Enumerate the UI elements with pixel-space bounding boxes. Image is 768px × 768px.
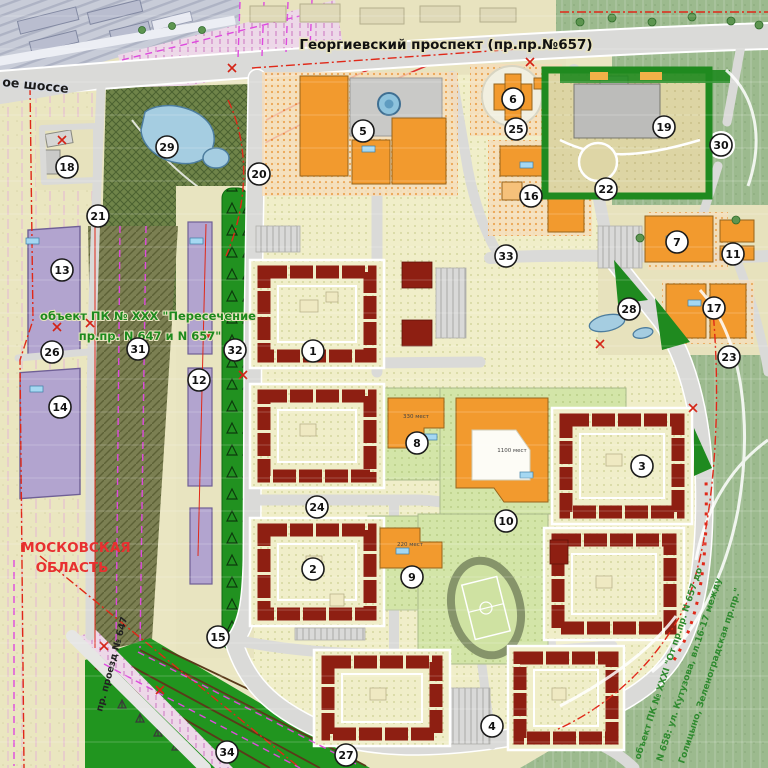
marker-number: 7 (673, 236, 681, 249)
marker-number: 2 (309, 563, 317, 576)
marker-2[interactable]: 2 (302, 558, 324, 580)
marker-number: 25 (508, 123, 523, 136)
marker-number: 30 (713, 139, 729, 152)
marker-number: 18 (59, 161, 74, 174)
marker-9[interactable]: 9 (401, 566, 423, 588)
marker-number: 19 (656, 121, 671, 134)
marker-25[interactable]: 25 (505, 118, 527, 140)
marker-number: 32 (227, 344, 242, 357)
marker-12[interactable]: 12 (188, 369, 210, 391)
marker-6[interactable]: 6 (502, 88, 524, 110)
marker-number: 29 (159, 141, 174, 154)
label-prospekt: Георгиевский проспект (пр.пр.№657) (299, 37, 592, 53)
marker-number: 1 (309, 345, 317, 358)
marker-11[interactable]: 11 (722, 243, 744, 265)
marker-number: 13 (54, 264, 69, 277)
label-capacity-kg9: 220 мест (397, 542, 424, 548)
marker-number: 15 (210, 631, 225, 644)
marker-24[interactable]: 24 (306, 496, 328, 518)
marker-30[interactable]: 30 (710, 134, 732, 156)
marker-number: 3 (638, 460, 646, 473)
label-capacity-school10: 1100 мест (497, 448, 527, 454)
label-pk30-line2: пр.пр. N 647 и N 657" (79, 329, 221, 343)
marker-15[interactable]: 15 (207, 626, 229, 648)
marker-number: 26 (44, 346, 60, 359)
marker-number: 4 (488, 720, 496, 733)
marker-number: 9 (408, 571, 416, 584)
marker-number: 21 (90, 210, 105, 223)
marker-23[interactable]: 23 (718, 346, 740, 368)
marker-5[interactable]: 5 (352, 120, 374, 142)
marker-32[interactable]: 32 (224, 339, 246, 361)
marker-29[interactable]: 29 (156, 136, 178, 158)
marker-7[interactable]: 7 (666, 231, 688, 253)
label-oblast-line1: МОСКОВСКАЯ (21, 540, 130, 556)
marker-19[interactable]: 19 (653, 116, 675, 138)
marker-31[interactable]: 31 (127, 338, 149, 360)
marker-number: 33 (498, 250, 513, 263)
marker-33[interactable]: 33 (495, 245, 517, 267)
marker-26[interactable]: 26 (41, 341, 63, 363)
marker-number: 22 (598, 183, 613, 196)
marker-3[interactable]: 3 (631, 455, 653, 477)
marker-13[interactable]: 13 (51, 259, 73, 281)
marker-number: 11 (725, 248, 740, 261)
marker-27[interactable]: 27 (335, 744, 357, 766)
marker-number: 16 (523, 190, 539, 203)
marker-1[interactable]: 1 (302, 340, 324, 362)
marker-number: 31 (130, 343, 145, 356)
marker-17[interactable]: 17 (703, 297, 725, 319)
marker-4[interactable]: 4 (481, 715, 503, 737)
marker-number: 20 (251, 168, 267, 181)
marker-number: 5 (359, 125, 367, 138)
marker-number: 8 (413, 437, 421, 450)
marker-number: 12 (191, 374, 206, 387)
marker-28[interactable]: 28 (618, 298, 640, 320)
marker-16[interactable]: 16 (520, 185, 542, 207)
masterplan-map: Георгиевский проспект (пр.пр.№657) ое шо… (0, 0, 768, 768)
marker-14[interactable]: 14 (49, 396, 71, 418)
label-capacity-school8: 330 мест (403, 414, 430, 420)
marker-number: 10 (498, 515, 514, 528)
masterplan-canvas: Георгиевский проспект (пр.пр.№657) ое шо… (0, 0, 768, 768)
label-oblast-line2: ОБЛАСТЬ (36, 560, 109, 576)
marker-18[interactable]: 18 (56, 156, 78, 178)
marker-number: 24 (309, 501, 325, 514)
marker-34[interactable]: 34 (216, 741, 238, 763)
label-pk30-line1: объект ПК № XXX "Пересечение (40, 309, 256, 323)
marker-number: 27 (338, 749, 353, 762)
marker-number: 6 (509, 93, 517, 106)
marker-20[interactable]: 20 (248, 163, 270, 185)
marker-8[interactable]: 8 (406, 432, 428, 454)
marker-number: 34 (219, 746, 235, 759)
marker-number: 23 (721, 351, 736, 364)
marker-number: 28 (621, 303, 636, 316)
marker-21[interactable]: 21 (87, 205, 109, 227)
marker-10[interactable]: 10 (495, 510, 517, 532)
marker-number: 14 (52, 401, 68, 414)
marker-number: 17 (706, 302, 721, 315)
marker-22[interactable]: 22 (595, 178, 617, 200)
